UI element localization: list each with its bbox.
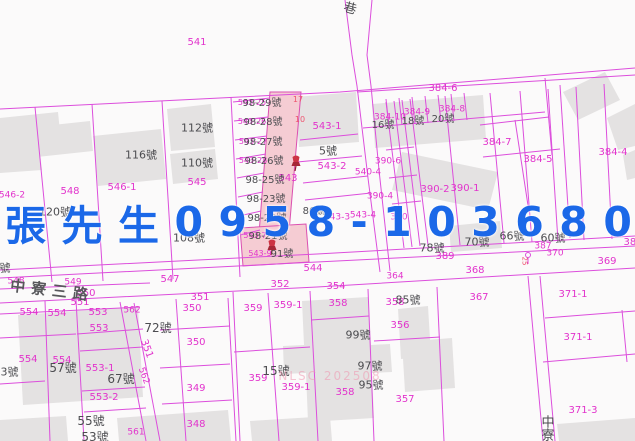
parcel-label-390-2: 390-2 — [420, 185, 449, 195]
house-label-60號: 60號 — [541, 233, 566, 244]
parcel-label-545: 545 — [187, 178, 206, 188]
house-label-98-22號: 98-22號 — [247, 214, 286, 224]
parcel-label-553: 553 — [89, 324, 108, 334]
parcel-label-544: 544 — [303, 264, 322, 274]
house-label-98-26號: 98-26號 — [244, 157, 283, 167]
house-label-20號: 20號 — [432, 115, 455, 125]
parcel-label-354: 354 — [326, 282, 345, 292]
parcel-label-371-3: 371-3 — [568, 406, 597, 416]
parcel-label-543-3: 543-3 — [324, 214, 350, 223]
parcel-label-357: 357 — [395, 395, 414, 405]
house-label-98-23號: 98-23號 — [246, 195, 285, 205]
house-label-110號: 110號 — [181, 158, 213, 169]
parcel-label-351: 351 — [138, 338, 154, 359]
parcel-label-541: 541 — [187, 38, 206, 48]
house-label-70號: 70號 — [465, 237, 490, 248]
house-label-120號: 120號 — [39, 207, 71, 218]
house-label-中寮: 中寮 — [540, 415, 553, 441]
parcel-label-384-5: 384-5 — [523, 155, 552, 165]
parcel-label-390-1: 390-1 — [450, 184, 479, 194]
parcel-label-368: 368 — [465, 266, 484, 276]
parcel-label-390: 390 — [390, 214, 407, 223]
parcel-label-553-2: 553-2 — [89, 393, 118, 403]
red-label-17: 17 — [293, 96, 303, 104]
parcel-label-540-4: 540-4 — [355, 169, 381, 178]
house-label-巷: 巷 — [342, 1, 358, 17]
parcel-label-562: 562 — [136, 366, 150, 385]
parcel-label-390-6: 390-6 — [375, 158, 401, 167]
parcel-label-546-1: 546-1 — [107, 183, 136, 193]
parcel-label-390-4: 390-4 — [367, 193, 393, 202]
parcel-label-350: 350 — [182, 304, 201, 314]
house-label-86號: 86號 — [303, 207, 326, 217]
parcel-label-543-9: 543-9 — [248, 250, 271, 258]
parcel-label-352: 352 — [270, 280, 289, 290]
parcel-label-543-2: 543-2 — [317, 162, 346, 172]
house-label-91號: 91號 — [271, 250, 294, 260]
house-label-57號: 57號 — [49, 362, 76, 374]
parcel-label-547: 547 — [160, 275, 179, 285]
parcel-label-554: 554 — [47, 309, 66, 319]
parcel-label-367: 367 — [469, 293, 488, 303]
house-label-98-29號: 98-29號 — [242, 99, 281, 109]
parcel-label-358: 358 — [328, 299, 347, 309]
parcel-label-359-1: 359-1 — [281, 383, 310, 393]
parcel-label-562: 562 — [123, 307, 140, 316]
house-label-108號: 108號 — [173, 233, 205, 244]
house-label-116號: 116號 — [125, 150, 157, 161]
parcel-label-553: 553 — [88, 308, 107, 318]
house-label-16號: 16號 — [372, 121, 395, 131]
house-label-98-25號: 98-25號 — [245, 176, 284, 186]
parcel-label-384-4: 384-4 — [598, 148, 627, 158]
parcel-label-543-1: 543-1 — [312, 122, 341, 132]
house-label-62號: 62號 — [0, 263, 11, 274]
house-label-99號: 99號 — [346, 330, 371, 341]
house-label-98-28號: 98-28號 — [243, 118, 282, 128]
house-label-5號: 5號 — [319, 146, 337, 157]
parcel-label-349: 349 — [186, 384, 205, 394]
labels-layer: 541384-6384-10384-9384-8384-7384-5384-45… — [0, 0, 635, 441]
parcel-label-351: 351 — [190, 293, 209, 303]
parcel-label-554: 554 — [19, 308, 38, 318]
house-label-66號: 66號 — [500, 231, 525, 242]
parcel-label-359-1: 359-1 — [273, 301, 302, 311]
house-label-112號: 112號 — [181, 123, 213, 134]
parcel-label-348: 348 — [186, 420, 205, 430]
house-label-55號: 55號 — [77, 415, 104, 427]
red-label-25: 25 — [521, 257, 528, 266]
parcel-label-385: 385 — [623, 238, 635, 248]
parcel-label-384-6: 384-6 — [428, 84, 457, 94]
parcel-label-359: 359 — [243, 304, 262, 314]
parcel-label-356: 356 — [390, 321, 409, 331]
street-label-中寮三路: 中寮三路 — [9, 278, 94, 303]
parcel-label-369: 369 — [597, 257, 616, 267]
house-label-67號: 67號 — [107, 373, 134, 385]
parcel-label-554: 554 — [18, 355, 37, 365]
house-label-98-21號: 98-21號 — [248, 232, 287, 242]
parcel-label-350: 350 — [186, 338, 205, 348]
house-label-72號: 72號 — [144, 322, 171, 334]
red-label-10: 10 — [295, 116, 305, 124]
house-label-85號: 85號 — [396, 295, 421, 306]
house-label-53號: 53號 — [81, 431, 108, 441]
parcel-label-370: 370 — [546, 250, 563, 259]
parcel-label-358: 358 — [335, 388, 354, 398]
parcel-label-384-7: 384-7 — [482, 138, 511, 148]
parcel-label-561: 561 — [127, 429, 144, 438]
house-label-18號: 18號 — [402, 117, 425, 127]
house-label-98-27號: 98-27號 — [243, 138, 282, 148]
parcel-label-546-2: 546-2 — [0, 192, 25, 201]
parcel-label-364: 364 — [386, 273, 403, 282]
parcel-label-543-4: 543-4 — [350, 212, 376, 221]
parcel-label-371-1: 371-1 — [558, 290, 587, 300]
parcel-label-548: 548 — [60, 187, 79, 197]
map-canvas[interactable]: 541384-6384-10384-9384-8384-7384-5384-45… — [0, 0, 635, 441]
watermark-label-NLSC 202508: NLSC 202508 — [278, 370, 381, 382]
parcel-label-371-1: 371-1 — [563, 333, 592, 343]
house-label-63號: 63號 — [0, 367, 19, 378]
house-label-78號: 78號 — [420, 243, 445, 254]
